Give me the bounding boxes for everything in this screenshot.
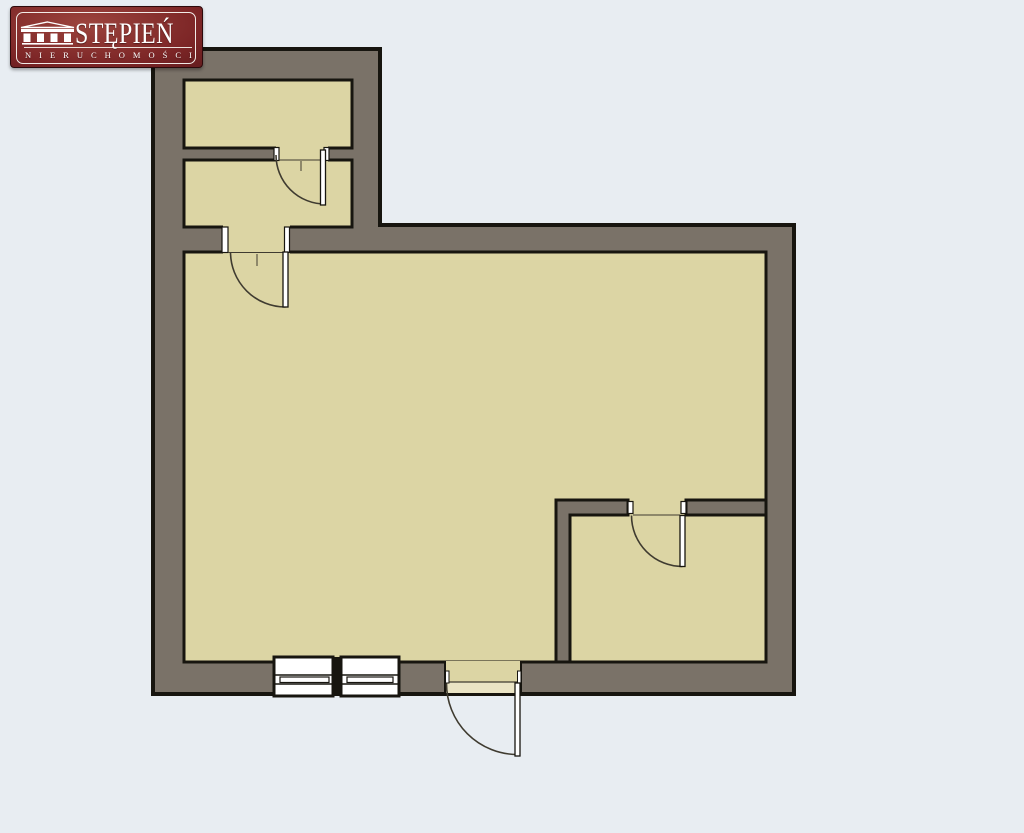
door-3-jamb-left	[628, 502, 633, 514]
floorplan-svg	[0, 0, 1024, 833]
door-3-jamb-right	[681, 502, 686, 514]
logo-title: STĘPIEŃ	[75, 19, 187, 49]
window-1-pane	[280, 677, 329, 683]
temple-icon	[20, 21, 75, 46]
entrance-opening-floor	[445, 661, 521, 682]
window-mullion	[333, 657, 342, 696]
door-2-panel	[283, 252, 288, 307]
logo-divider	[24, 47, 192, 48]
br-room-wall-right	[686, 500, 766, 515]
main-room-floor	[184, 252, 766, 662]
door-2-jamb-left	[222, 227, 228, 253]
floorplan-page: STĘPIEŃ NIERUCHOMOŚCI	[0, 0, 1024, 833]
entrance-threshold	[445, 682, 521, 693]
logo-subtitle: NIERUCHOMOŚCI	[25, 50, 200, 60]
door-2-opening	[223, 223, 290, 254]
door-2-jamb-right	[285, 227, 290, 253]
window-2-pane	[347, 677, 393, 683]
entrance-jamb-right	[518, 671, 522, 683]
room-top-1-floor	[184, 80, 352, 148]
entrance-jamb-left	[446, 671, 450, 683]
entrance-door-panel	[515, 683, 520, 756]
door-3-panel	[680, 516, 685, 567]
room-top-2-floor	[184, 160, 352, 227]
logo: STĘPIEŃ NIERUCHOMOŚCI	[10, 6, 203, 68]
door-1-panel	[321, 150, 326, 205]
